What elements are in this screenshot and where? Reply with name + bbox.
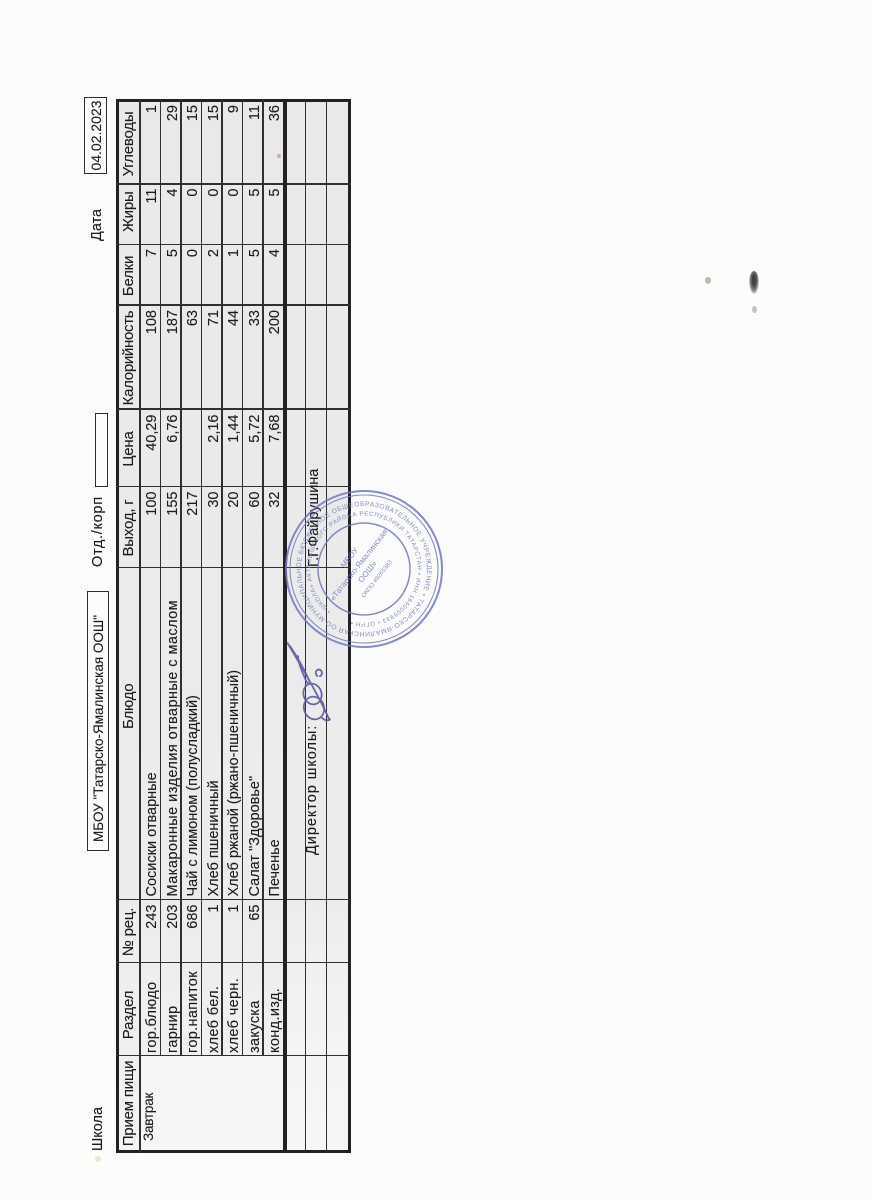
svg-text:«Татарско-Ямалинская: «Татарско-Ямалинская bbox=[328, 527, 389, 602]
